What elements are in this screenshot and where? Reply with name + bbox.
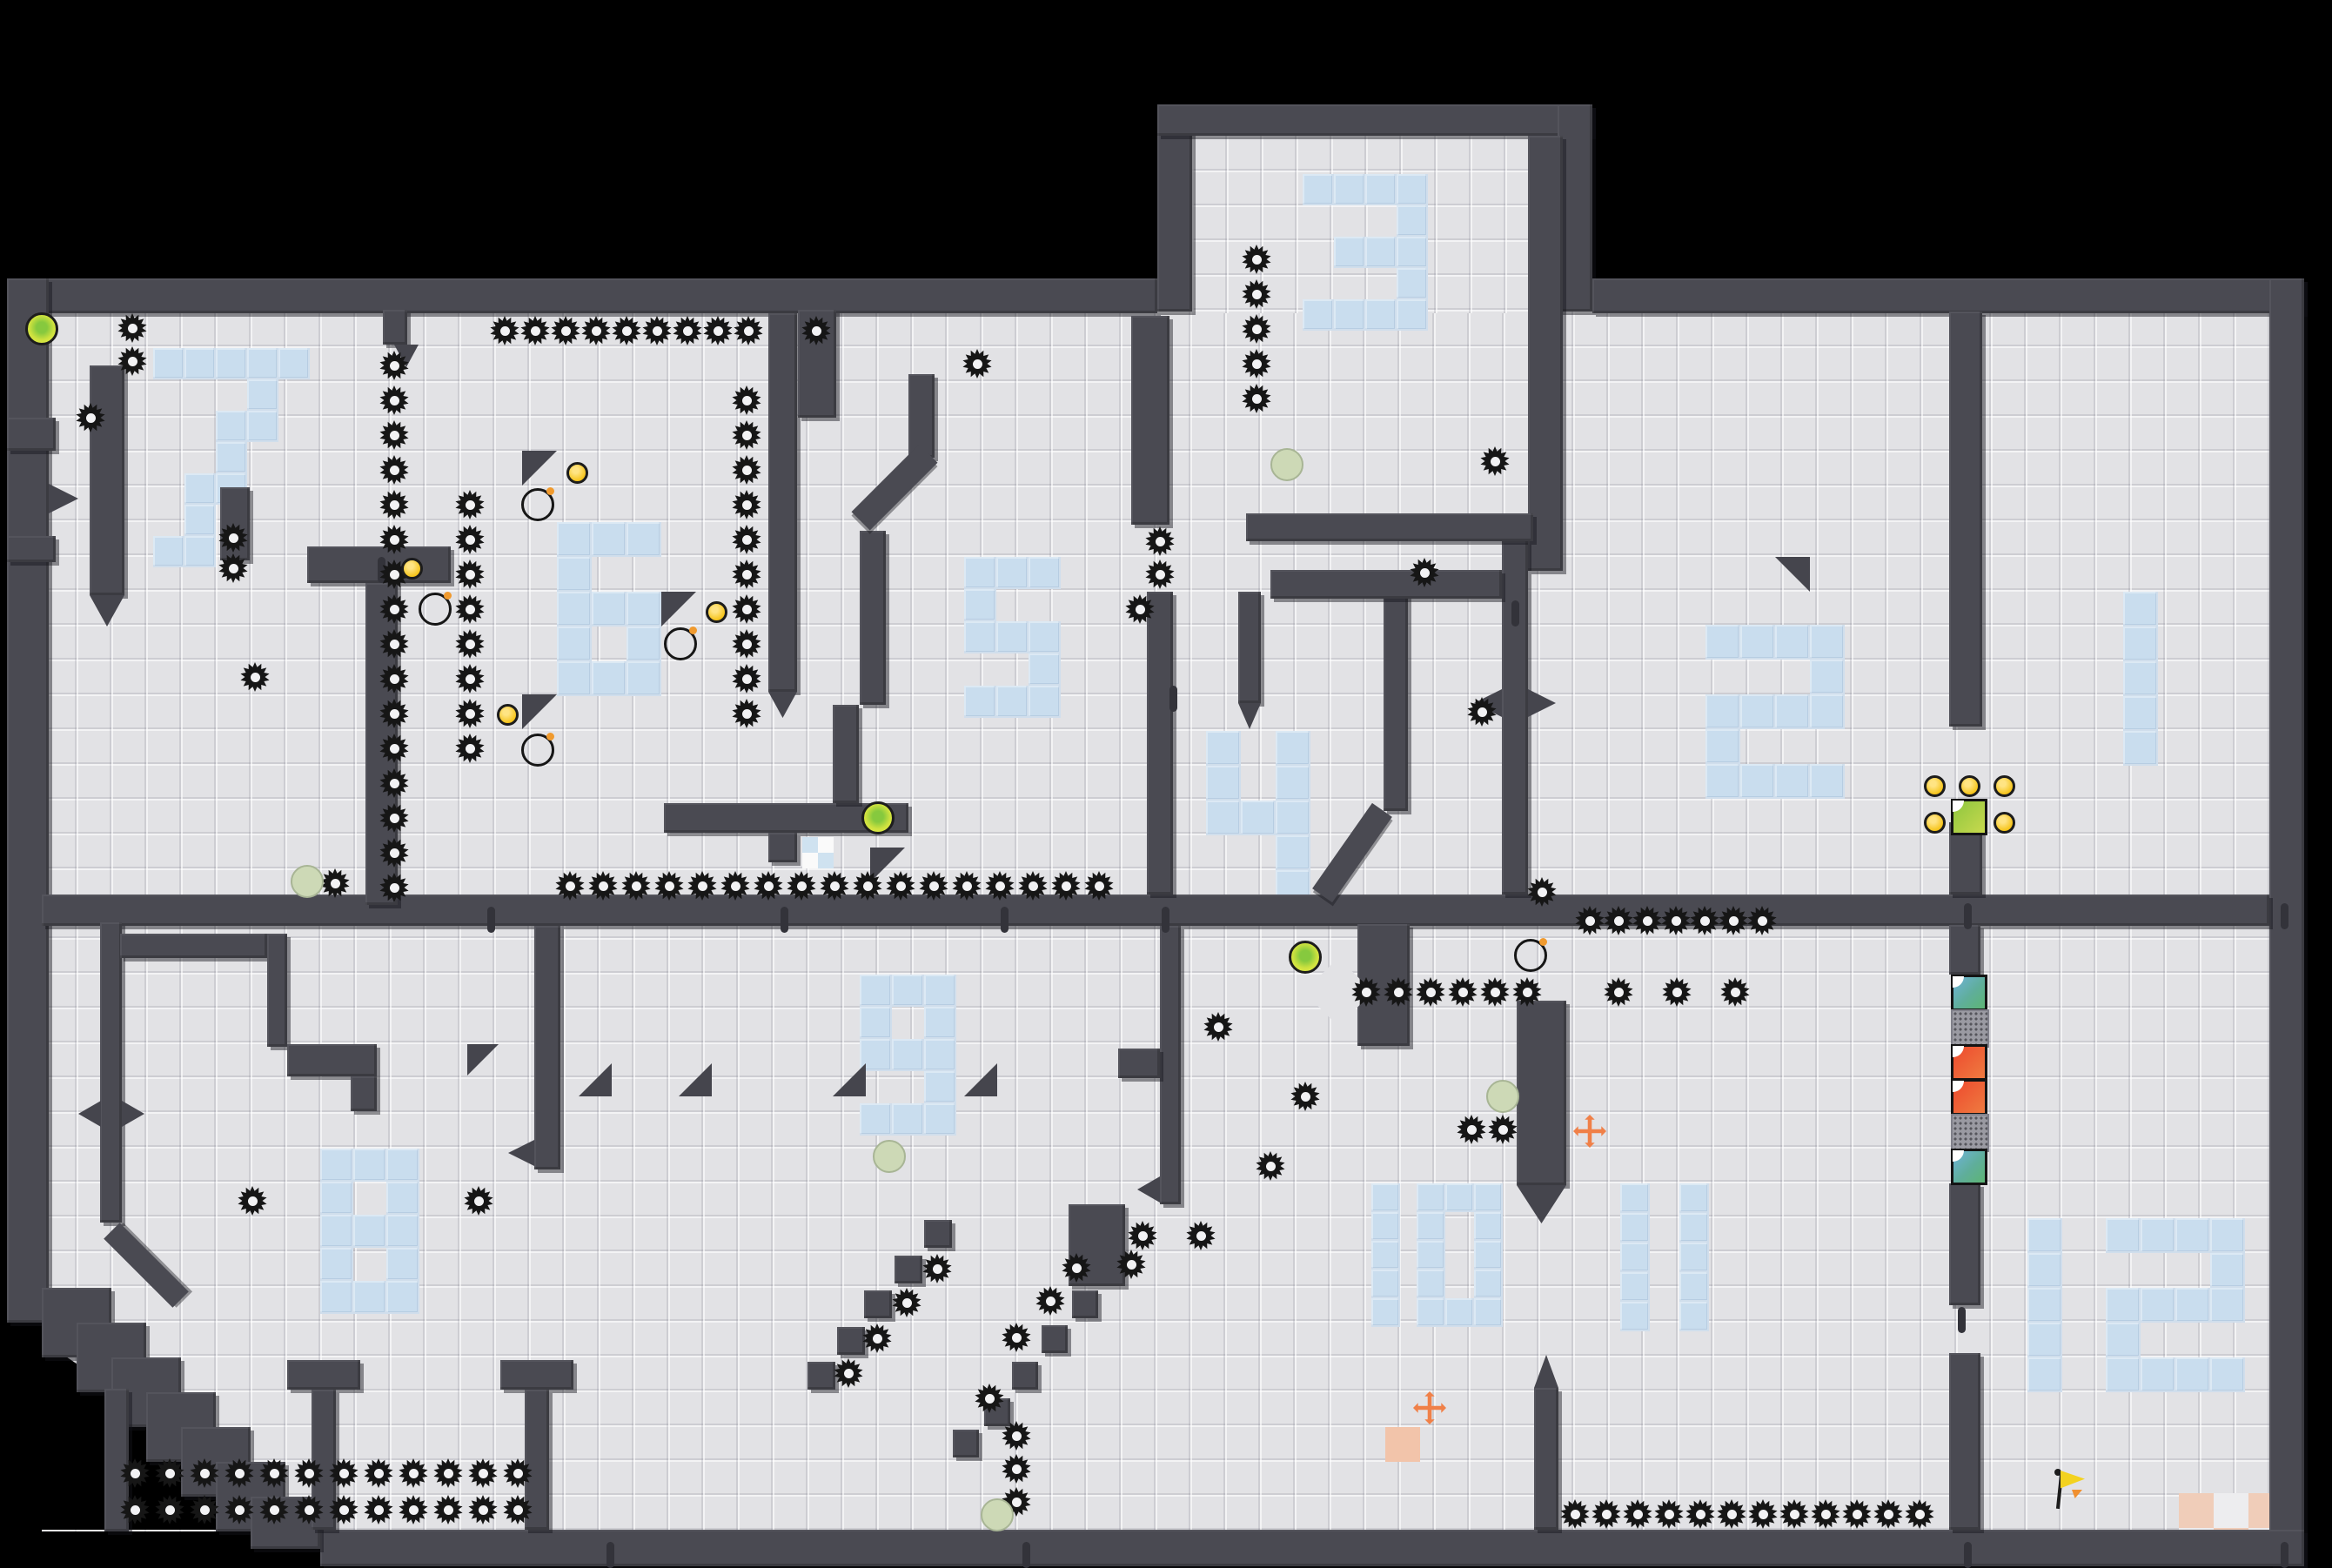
player-ball-yellow[interactable] [25, 312, 58, 345]
room-number-1-tile [2123, 592, 2158, 627]
room-number-7-tile [153, 348, 184, 379]
wall-segment [320, 1530, 2304, 1566]
room-number-2-tile [2210, 1218, 2245, 1253]
portal-green[interactable] [1951, 799, 1987, 835]
room-number-1-tile [2027, 1218, 2062, 1253]
wall-segment [924, 1220, 952, 1248]
room-number-4-tile [1206, 766, 1241, 801]
wall-segment [1072, 1290, 1098, 1318]
room-number-1-tile [1620, 1272, 1650, 1302]
room-number-2-tile [2141, 1288, 2175, 1323]
room-number-8-tile [320, 1215, 353, 1248]
wall-segment [1270, 570, 1502, 599]
room-number-2-tile [2210, 1357, 2245, 1392]
wall-segment [351, 1076, 377, 1111]
coin[interactable] [1959, 775, 1980, 797]
room-number-3-tile [1303, 299, 1334, 331]
wall-segment [1949, 312, 1982, 727]
room-number-1-tile [1679, 1272, 1709, 1302]
room-number-3-tile [1365, 237, 1397, 268]
switch-tile-gray[interactable] [1951, 1114, 1989, 1152]
room-number-2-tile [2175, 1218, 2210, 1253]
switch-tile-teal[interactable] [1951, 975, 1987, 1011]
room-number-8-tile [386, 1182, 419, 1215]
ball-pale[interactable] [1270, 448, 1303, 481]
room-number-2-tile [2210, 1288, 2245, 1323]
room-number-0-tile [1474, 1212, 1503, 1241]
room-number-1-tile [2027, 1253, 2062, 1288]
switch-tile-red[interactable] [1951, 1044, 1987, 1081]
room-number-3-tile [1397, 268, 1428, 299]
switch-tile-red[interactable] [1951, 1079, 1987, 1116]
wall-segment [1534, 1388, 1558, 1530]
room-number-0-tile [1417, 1212, 1445, 1241]
ball-pale[interactable] [981, 1498, 1014, 1531]
wall-segment [953, 1430, 979, 1457]
bomb-orb[interactable] [1514, 939, 1547, 972]
room-number-3-tile [1397, 174, 1428, 205]
door-marker [606, 1542, 614, 1568]
room-number-1-tile [1620, 1183, 1650, 1213]
wall-segment [833, 705, 859, 803]
door-marker [487, 907, 495, 933]
room-number-1-tile [2027, 1288, 2062, 1323]
room-number-9-tile [924, 1103, 956, 1136]
coin[interactable] [566, 462, 588, 484]
room-number-2-tile [1705, 764, 1740, 799]
wall-segment [1517, 1001, 1566, 1185]
wall-segment [1238, 592, 1261, 703]
room-number-2-tile [1705, 625, 1740, 660]
wall-segment [837, 1327, 865, 1355]
room-number-9-tile [860, 1103, 892, 1136]
room-number-1-tile [1371, 1241, 1400, 1270]
door-marker [1162, 907, 1169, 933]
room-number-3-tile [1334, 237, 1365, 268]
room-number-2-tile [2141, 1357, 2175, 1392]
wall-segment [1528, 136, 1563, 571]
room-number-2-tile [2210, 1253, 2245, 1288]
door-marker [378, 557, 385, 583]
wall-segment [768, 313, 797, 692]
wall-segment [1592, 278, 2304, 313]
door-marker [1022, 1542, 1030, 1568]
room-number-8-tile [353, 1281, 386, 1314]
wall-segment [7, 418, 56, 451]
room-number-4-tile [1276, 766, 1310, 801]
wall-segment [1558, 104, 1592, 312]
bomb-orb[interactable] [664, 627, 697, 660]
room-number-3-tile [1365, 174, 1397, 205]
room-number-1-tile [2123, 627, 2158, 661]
room-number-4-tile [1276, 731, 1310, 766]
checker-tiles-blue [818, 853, 834, 868]
door-marker [1001, 907, 1009, 933]
room-number-2-tile [1775, 764, 1810, 799]
room-number-5-tile [1029, 621, 1061, 653]
room-number-0-tile [1474, 1270, 1503, 1298]
room-number-2-tile [1810, 660, 1845, 694]
room-number-1-tile [2123, 696, 2158, 731]
wall-segment [1502, 541, 1528, 895]
room-number-4-tile [1206, 731, 1241, 766]
wall-segment [1949, 925, 1980, 975]
room-number-9-tile [892, 1039, 924, 1071]
room-number-8-tile [320, 1149, 353, 1182]
room-number-2-tile [2106, 1288, 2141, 1323]
room-number-2-tile [2175, 1357, 2210, 1392]
room-number-5-tile [1029, 557, 1061, 589]
room-number-9-tile [892, 975, 924, 1007]
room-number-2-tile [1810, 764, 1845, 799]
room-number-7-tile [184, 505, 216, 536]
room-number-9-tile [924, 975, 956, 1007]
room-number-7-tile [184, 536, 216, 567]
checker-tiles-pink [2214, 1493, 2248, 1528]
room-number-3-tile [1397, 237, 1428, 268]
room-number-0-tile [1417, 1270, 1445, 1298]
room-number-4-tile [1206, 801, 1241, 835]
room-number-6-tile [557, 627, 592, 661]
room-number-9-tile [924, 1039, 956, 1071]
wall-segment [1384, 592, 1408, 811]
room-number-2-tile [1775, 694, 1810, 729]
switch-tile-teal[interactable] [1951, 1149, 1987, 1185]
checker-tiles-pink [2179, 1493, 2214, 1528]
wall-segment [1042, 1325, 1068, 1353]
door-marker [2281, 903, 2288, 929]
room-number-1-tile [1371, 1212, 1400, 1241]
room-number-1-tile [1620, 1243, 1650, 1272]
wall-segment [860, 531, 886, 705]
room-number-7-tile [247, 411, 278, 442]
room-number-6-tile [557, 592, 592, 627]
finish-flag-knob [2054, 1469, 2061, 1476]
room-number-1-tile [1371, 1183, 1400, 1212]
room-number-6-tile [627, 627, 661, 661]
checker-tiles-blue [818, 837, 834, 853]
wall-segment [383, 310, 407, 345]
door-marker [1169, 686, 1177, 712]
room-number-8-tile [320, 1281, 353, 1314]
room-number-1-tile [2123, 661, 2158, 696]
room-number-4-tile [1276, 835, 1310, 870]
room-number-2-tile [2141, 1218, 2175, 1253]
room-number-4-tile [1276, 801, 1310, 835]
room-number-1-tile [1679, 1213, 1709, 1243]
room-number-5-tile [996, 686, 1029, 718]
room-number-2-tile [1810, 694, 1845, 729]
room-number-7-tile [247, 348, 278, 379]
wall-segment [220, 487, 250, 560]
room-number-5-tile [996, 621, 1029, 653]
door-marker [781, 907, 788, 933]
wall-segment [534, 926, 560, 1169]
coin[interactable] [1924, 812, 1946, 834]
room-number-8-tile [386, 1215, 419, 1248]
wall-segment [120, 934, 267, 958]
room-number-5-tile [964, 589, 996, 621]
coin[interactable] [1994, 812, 2015, 834]
wall-segment [1949, 1353, 1980, 1530]
wall-segment [7, 278, 1157, 313]
room-number-2-tile [1775, 625, 1810, 660]
room-number-1-tile [2123, 731, 2158, 766]
room-number-7-tile [216, 411, 247, 442]
coin[interactable] [1924, 775, 1946, 797]
room-number-0-tile [1417, 1183, 1445, 1212]
room-number-3-tile [1334, 174, 1365, 205]
room-number-1-tile [1371, 1298, 1400, 1327]
wall-segment [807, 1362, 835, 1390]
room-number-5-tile [964, 621, 996, 653]
room-number-9-tile [924, 1071, 956, 1103]
room-number-8-tile [386, 1248, 419, 1281]
room-number-6-tile [627, 522, 661, 557]
room-number-9-tile [860, 1007, 892, 1039]
switch-tile-gray[interactable] [1951, 1009, 1989, 1048]
room-number-7-tile [184, 473, 216, 505]
room-number-0-tile [1417, 1241, 1445, 1270]
wall-segment [90, 365, 124, 595]
wall-segment [500, 1360, 573, 1390]
room-number-7-tile [184, 348, 216, 379]
door-marker [1964, 903, 1972, 929]
room-number-2-tile [1740, 694, 1775, 729]
player-ball-yellow[interactable] [1289, 941, 1322, 974]
player-ball-yellow[interactable] [861, 801, 895, 834]
wall-segment [768, 833, 797, 862]
wall-segment [1012, 1362, 1038, 1390]
wall-segment [267, 934, 287, 1047]
room-number-1-tile [1371, 1270, 1400, 1298]
door-marker [2281, 1542, 2288, 1568]
room-number-8-tile [386, 1281, 419, 1314]
wall-segment [1157, 104, 1592, 136]
room-number-5-tile [964, 557, 996, 589]
room-number-3-tile [1334, 299, 1365, 331]
room-number-1-tile [2027, 1357, 2062, 1392]
room-number-8-tile [353, 1149, 386, 1182]
room-number-2-tile [1740, 764, 1775, 799]
room-number-1-tile [1679, 1243, 1709, 1272]
wall-segment [864, 1290, 892, 1318]
room-number-6-tile [627, 592, 661, 627]
room-number-3-tile [1365, 299, 1397, 331]
wall-segment [895, 1256, 922, 1283]
wall-segment [287, 1360, 360, 1390]
room-number-2-tile [1810, 625, 1845, 660]
room-number-1-tile [1679, 1302, 1709, 1331]
room-number-6-tile [557, 522, 592, 557]
room-number-3-tile [1397, 205, 1428, 237]
wall-segment [1949, 1183, 1980, 1305]
ball-pale[interactable] [291, 865, 324, 898]
room-number-2-tile [1705, 729, 1740, 764]
room-number-1-tile [1620, 1213, 1650, 1243]
room-number-3-tile [1397, 299, 1428, 331]
room-number-0-tile [1417, 1298, 1445, 1327]
room-number-5-tile [1029, 653, 1061, 686]
room-number-0-tile [1445, 1298, 1474, 1327]
room-number-7-tile [216, 348, 247, 379]
room-number-6-tile [592, 592, 627, 627]
wall-segment [1147, 592, 1173, 895]
room-number-5-tile [1029, 686, 1061, 718]
room-number-6-tile [557, 661, 592, 696]
room-number-2-tile [2106, 1357, 2141, 1392]
room-number-8-tile [353, 1215, 386, 1248]
checker-tiles-blue [802, 837, 818, 853]
room-number-7-tile [216, 442, 247, 473]
room-number-7-tile [153, 536, 184, 567]
room-number-6-tile [592, 661, 627, 696]
door-marker [1964, 1542, 1972, 1568]
bomb-orb[interactable] [521, 734, 554, 767]
room-number-0-tile [1474, 1298, 1503, 1327]
game-map [0, 0, 2332, 1566]
room-number-1-tile [1620, 1302, 1650, 1331]
room-number-8-tile [320, 1248, 353, 1281]
room-number-0-tile [1474, 1241, 1503, 1270]
room-number-6-tile [592, 522, 627, 557]
room-number-2-tile [2106, 1218, 2141, 1253]
wall-segment [1131, 316, 1169, 525]
room-number-7-tile [278, 348, 310, 379]
room-number-9-tile [892, 1103, 924, 1136]
room-number-0-tile [1445, 1183, 1474, 1212]
wall-segment [908, 374, 935, 458]
room-number-8-tile [386, 1149, 419, 1182]
room-number-6-tile [627, 661, 661, 696]
bomb-orb[interactable] [419, 593, 452, 626]
door-marker [1958, 1307, 1966, 1333]
room-number-0-tile [1474, 1183, 1503, 1212]
room-number-9-tile [860, 975, 892, 1007]
wall-segment [1118, 1049, 1160, 1078]
coin[interactable] [401, 558, 423, 580]
room-number-1-tile [1679, 1183, 1709, 1213]
wall-segment [7, 536, 56, 562]
wall-segment [287, 1044, 377, 1076]
room-number-8-tile [320, 1182, 353, 1215]
room-number-5-tile [964, 686, 996, 718]
ball-pale[interactable] [873, 1140, 906, 1173]
room-number-2-tile [1740, 625, 1775, 660]
coin[interactable] [1994, 775, 2015, 797]
room-number-2-tile [1705, 694, 1740, 729]
ball-pale[interactable] [1486, 1080, 1519, 1113]
coin[interactable] [497, 704, 519, 726]
room-number-1-tile [2027, 1323, 2062, 1357]
room-number-5-tile [996, 557, 1029, 589]
room-number-2-tile [2175, 1288, 2210, 1323]
coin[interactable] [706, 601, 727, 623]
wall-segment [100, 922, 122, 1223]
room-number-6-tile [557, 557, 592, 592]
room-number-7-tile [247, 379, 278, 411]
door-marker [1511, 600, 1519, 627]
wall-segment [1160, 926, 1181, 1204]
bomb-orb[interactable] [521, 488, 554, 521]
room-number-3-tile [1303, 174, 1334, 205]
wall-segment [1246, 513, 1533, 541]
checker-tiles-blue [802, 853, 818, 868]
room-number-2-tile [2106, 1323, 2141, 1357]
room-number-4-tile [1241, 801, 1276, 835]
pressure-tile [1385, 1427, 1420, 1462]
room-number-9-tile [924, 1007, 956, 1039]
